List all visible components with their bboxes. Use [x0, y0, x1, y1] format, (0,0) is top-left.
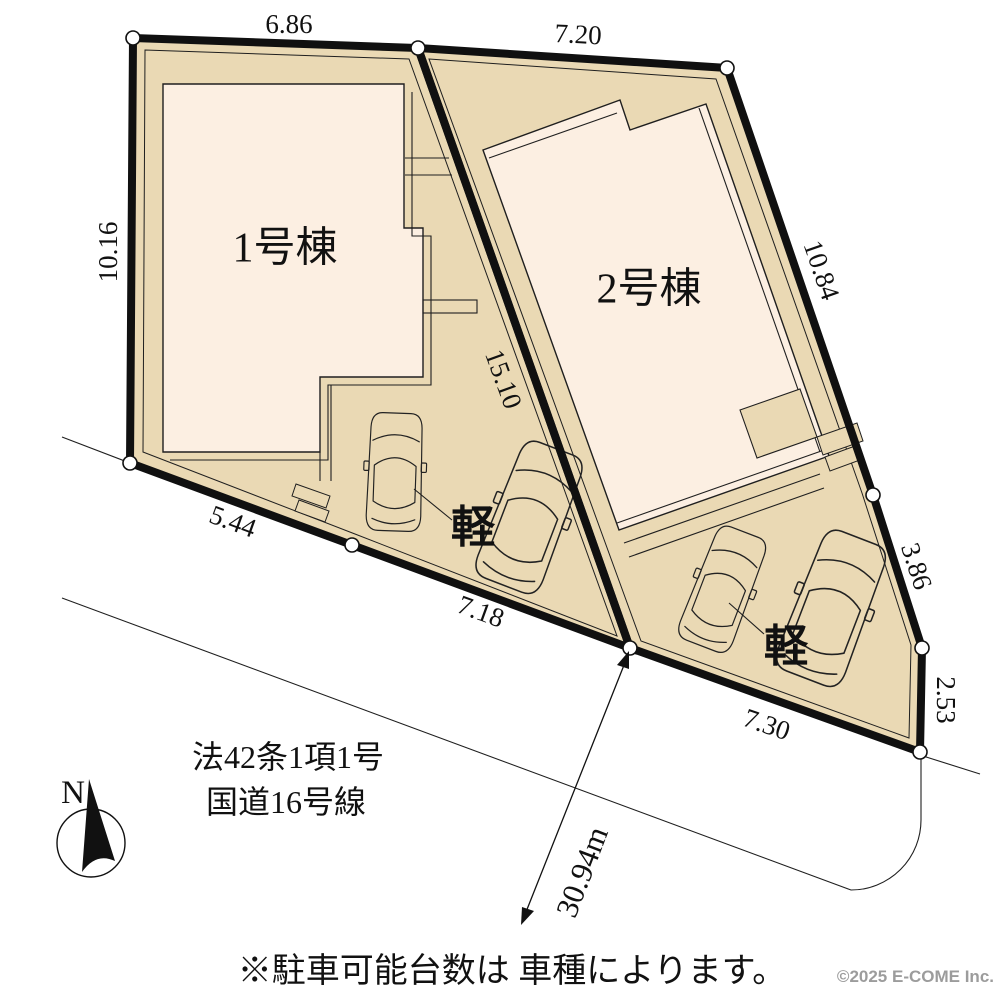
vertex-marker — [913, 745, 927, 759]
dimension-left: 10.16 — [93, 222, 123, 283]
road-edge-stub — [923, 756, 980, 774]
vertex-marker — [915, 641, 929, 655]
kei-label-2: 軽 — [764, 622, 809, 671]
vertex-marker — [126, 31, 140, 45]
parking-note: ※駐車可能台数は 車種によります。 — [238, 952, 786, 990]
footer: ※駐車可能台数は 車種によります。 ©2025 E-COME Inc. — [238, 952, 994, 990]
vertex-marker — [720, 61, 734, 75]
road-frontage-text: 法42条1項1号 国道16号線 — [192, 739, 384, 820]
compass-needle-icon — [82, 779, 115, 872]
vertex-marker — [623, 641, 637, 655]
compass-north-label: N — [61, 775, 85, 811]
vertex-marker — [345, 538, 359, 552]
compass: N — [57, 775, 125, 877]
vertex-marker — [411, 41, 425, 55]
arrowhead-down — [521, 907, 534, 925]
dimension-top-plot2: 7.20 — [554, 18, 603, 50]
kei-label-1: 軽 — [451, 503, 496, 552]
road-edge-line-upper — [62, 437, 130, 463]
road-law-label: 法42条1項1号 — [192, 739, 384, 775]
arrowhead-up — [617, 651, 629, 669]
dimension-bottom-right: 7.30 — [740, 702, 794, 746]
building-1-label: 1号棟 — [232, 226, 337, 272]
road-width-label: 30.94m — [549, 822, 615, 922]
site-plan-svg: 30.94m 6.86 7.20 10.16 10.84 15.10 5.44 … — [0, 0, 1000, 1000]
dimension-top-plot1: 6.86 — [265, 9, 312, 39]
road-name-label: 国道16号線 — [206, 784, 366, 820]
road-width-arrow: 30.94m — [521, 651, 629, 925]
site-plan-page: 30.94m 6.86 7.20 10.16 10.84 15.10 5.44 … — [0, 0, 1000, 1000]
dimension-right-edge: 2.53 — [931, 676, 961, 723]
vertex-marker — [866, 488, 880, 502]
vertex-marker — [123, 456, 137, 470]
copyright-label: ©2025 E-COME Inc. — [837, 967, 994, 986]
building-2-label: 2号棟 — [596, 267, 701, 313]
